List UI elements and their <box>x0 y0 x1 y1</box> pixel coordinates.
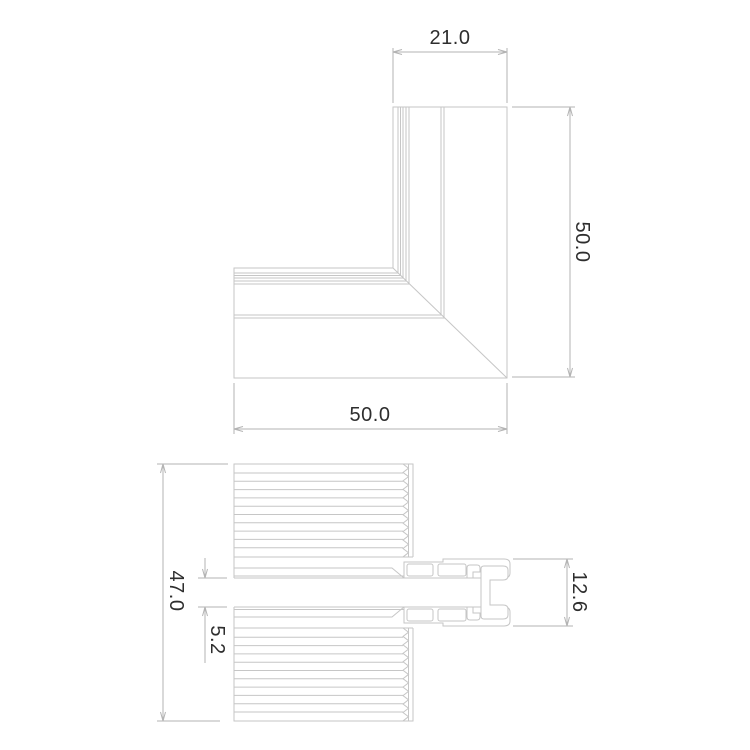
upper-sash-block <box>234 464 467 578</box>
connector-key-c-profile <box>481 566 508 619</box>
dimension-label-50-right: 50.0 <box>571 222 593 263</box>
dimension-lines <box>512 107 575 377</box>
dimension-label-50-bottom: 50.0 <box>350 404 391 426</box>
drawing-canvas: 21.0 50.0 50.0 <box>0 0 750 750</box>
miter-diagonal-line <box>393 268 507 378</box>
upper-block-ribs <box>234 473 403 548</box>
dimension-21-top: 21.0 <box>393 27 507 103</box>
technical-drawing: 21.0 50.0 50.0 <box>0 0 750 750</box>
dimension-47-left: 47.0 <box>157 464 228 721</box>
dimension-5-2-slot: 5.2 <box>198 558 228 663</box>
upper-hook <box>467 565 480 578</box>
corner-connector-assembly <box>404 559 510 626</box>
corner-profile-outline <box>234 107 507 378</box>
lower-block-ribs <box>234 637 403 712</box>
dimension-label-12-6: 12.6 <box>568 572 590 613</box>
upper-clip-pad-right <box>438 564 466 576</box>
dimension-50-right: 50.0 <box>512 107 593 377</box>
dimension-12-6-right: 12.6 <box>513 559 590 626</box>
lower-sash-block <box>234 607 467 721</box>
dimension-50-bottom: 50.0 <box>234 383 507 434</box>
lower-block-serration <box>403 628 409 721</box>
dimension-lines <box>393 48 507 103</box>
lower-clip-pad-left <box>407 609 433 621</box>
dimension-lines <box>513 559 573 626</box>
dimension-label-5-2: 5.2 <box>206 625 228 654</box>
vertical-leg-inner-lines <box>398 107 444 317</box>
dimension-label-47: 47.0 <box>165 571 187 612</box>
dimension-label-21: 21.0 <box>430 27 471 49</box>
upper-clip-pad-left <box>407 564 433 576</box>
horizontal-leg-inner-lines <box>234 273 445 318</box>
lower-hook <box>467 607 480 620</box>
corner-section-view: 47.0 5.2 12.6 <box>157 464 590 721</box>
upper-block-serration <box>403 464 409 557</box>
corner-top-view: 21.0 50.0 50.0 <box>234 27 593 434</box>
lower-clip-pad-right <box>438 609 466 621</box>
